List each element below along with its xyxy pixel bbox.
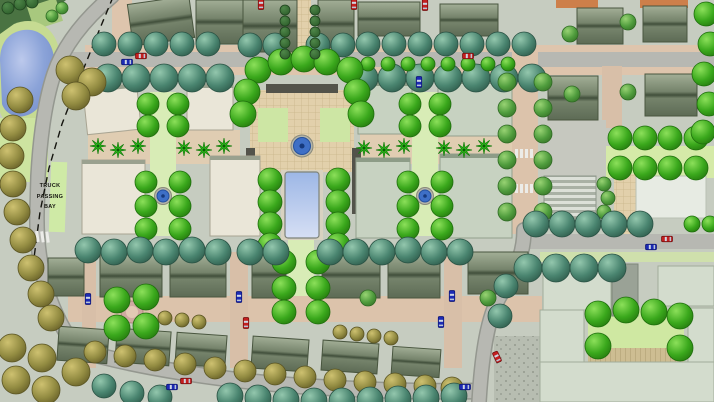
palm-plant-center [137, 145, 140, 148]
bright-green-tree [230, 101, 256, 127]
bright-green-tree [135, 218, 157, 240]
palm-plant-center [383, 149, 386, 152]
bright-green-tree [692, 62, 714, 86]
palm-plant-center [183, 147, 186, 150]
olive-tree [7, 87, 33, 113]
bright-green-tree [326, 190, 350, 214]
apartment-building-edge [210, 156, 260, 160]
green-tree [480, 290, 496, 306]
teal-tree [153, 239, 179, 265]
bright-green-tree [306, 276, 330, 300]
spine-fountain-right-center [423, 194, 427, 198]
truck-passing-bay-verge [49, 162, 67, 233]
green-tree [46, 10, 58, 22]
olive-tree [114, 345, 136, 367]
bright-green-tree [326, 168, 350, 192]
apartment-building [210, 156, 260, 236]
teal-tree [144, 32, 168, 56]
teal-tree [447, 239, 473, 265]
bright-green-tree [135, 171, 157, 193]
green-tree [597, 177, 611, 191]
teal-tree [395, 237, 421, 263]
palm-plant-center [483, 145, 486, 148]
green-tree [562, 26, 578, 42]
bright-green-tree [658, 126, 682, 150]
bright-green-tree [397, 171, 419, 193]
olive-tree [158, 311, 172, 325]
dark-shrub [280, 5, 290, 15]
car-blue [438, 317, 444, 328]
dark-shrub [280, 49, 290, 59]
car-blue [449, 291, 455, 302]
car-blue [416, 77, 422, 88]
bright-green-tree [613, 297, 639, 323]
bright-green-tree [348, 101, 374, 127]
car-red [422, 0, 428, 11]
bright-green-tree [399, 115, 421, 137]
apartment-building-edge [356, 158, 410, 162]
bright-green-tree [691, 120, 714, 144]
green-tree [564, 86, 580, 102]
bright-green-tree [137, 93, 159, 115]
bright-green-tree [258, 212, 282, 236]
olive-tree [384, 331, 398, 345]
teal-tree [317, 239, 343, 265]
bright-green-tree [234, 79, 260, 105]
olive-tree [333, 325, 347, 339]
teal-tree [523, 211, 549, 237]
green-tree [534, 125, 552, 143]
olive-tree [0, 334, 26, 362]
bright-green-tree [258, 168, 282, 192]
bright-green-tree [104, 315, 130, 341]
teal-tree [570, 254, 598, 282]
olive-tree [175, 313, 189, 327]
bright-green-tree [272, 300, 296, 324]
bright-green-tree [585, 301, 611, 327]
flat-roof-building [658, 266, 714, 306]
plaza-lawn-right [320, 108, 350, 142]
teal-tree [92, 32, 116, 56]
crosswalk-east-1 [525, 149, 528, 158]
green-tree [534, 177, 552, 195]
dark-shrub [280, 16, 290, 26]
teal-tree [343, 239, 369, 265]
olive-tree [28, 344, 56, 372]
olive-tree [32, 376, 60, 402]
palm-plant-center [363, 147, 366, 150]
teal-tree [237, 239, 263, 265]
palm-plant-center [117, 149, 120, 152]
dark-shrub [310, 49, 320, 59]
olive-tree [84, 341, 106, 363]
car-red [136, 53, 147, 59]
bright-green-tree [133, 313, 159, 339]
teal-tree [488, 304, 512, 328]
crosswalk-east-1 [530, 149, 533, 158]
bright-green-tree [429, 93, 451, 115]
bright-green-tree [481, 57, 495, 71]
teal-tree [101, 239, 127, 265]
teal-tree [122, 64, 150, 92]
teal-tree [356, 32, 380, 56]
bright-green-tree [344, 79, 370, 105]
building [636, 176, 706, 218]
plaza-fountain-center [299, 143, 304, 148]
olive-tree [367, 329, 381, 343]
spine-fountain-left-center [161, 194, 165, 198]
bright-green-tree [633, 156, 657, 180]
olive-tree [350, 327, 364, 341]
teal-tree [601, 211, 627, 237]
reflecting-pool [285, 172, 319, 238]
palm-plant-center [97, 145, 100, 148]
dark-shrub [310, 27, 320, 37]
mews-street-3 [444, 252, 462, 368]
car-blue [167, 384, 178, 390]
bright-green-tree [608, 126, 632, 150]
teal-tree [206, 64, 234, 92]
green-tree [534, 73, 552, 91]
masterplan-viewport: TRUCK PASSING BAY [0, 0, 714, 402]
townhouse-roof [577, 8, 623, 44]
townhouse-roof [321, 340, 379, 374]
teal-tree [512, 32, 536, 56]
site-plan-rendering [0, 0, 714, 402]
green-tree [498, 73, 516, 91]
teal-tree [179, 237, 205, 263]
olive-tree [0, 115, 26, 141]
bright-green-tree [104, 287, 130, 313]
crosswalk-east-2 [525, 184, 528, 193]
olive-tree [192, 315, 206, 329]
palm-plant-center [203, 149, 206, 152]
dark-shrub [310, 5, 320, 15]
car-blue [236, 292, 242, 303]
teal-tree [263, 239, 289, 265]
townhouse-roof [645, 74, 697, 116]
bright-green-tree [658, 156, 682, 180]
mews-street-2 [230, 252, 248, 368]
teal-tree [170, 32, 194, 56]
olive-tree [4, 199, 30, 225]
teal-tree [75, 237, 101, 263]
teal-tree [494, 274, 518, 298]
olive-tree [38, 305, 64, 331]
teal-tree [238, 33, 262, 57]
bright-green-tree [441, 57, 455, 71]
gravel-garden [494, 336, 540, 402]
crosswalk-east-1 [520, 149, 523, 158]
teal-tree [627, 211, 653, 237]
olive-tree [174, 353, 196, 375]
olive-tree [0, 143, 24, 169]
palm-plant-center [443, 147, 446, 150]
pergola [266, 84, 338, 93]
green-tree [620, 84, 636, 100]
teal-tree [196, 32, 220, 56]
green-tree [534, 151, 552, 169]
olive-tree [144, 349, 166, 371]
bright-green-tree [684, 216, 700, 232]
bright-green-tree [667, 335, 693, 361]
teal-tree [382, 32, 406, 56]
bright-green-tree [272, 276, 296, 300]
olive-tree [18, 255, 44, 281]
bright-green-tree [429, 115, 451, 137]
bright-green-tree [702, 216, 714, 232]
green-tree [498, 99, 516, 117]
dark-shrub [26, 0, 38, 8]
green-tree [498, 177, 516, 195]
bright-green-tree [137, 115, 159, 137]
townhouse-roof [391, 346, 441, 377]
teal-tree [421, 239, 447, 265]
teal-tree [575, 211, 601, 237]
green-tree [498, 203, 516, 221]
car-red [662, 236, 673, 242]
bright-green-tree [167, 115, 189, 137]
bright-green-tree [258, 190, 282, 214]
flat-roof-building [540, 362, 714, 402]
car-blue [646, 244, 657, 250]
car-red [351, 0, 357, 10]
townhouse-roof [440, 4, 498, 36]
bright-green-tree [326, 212, 350, 236]
dark-shrub [310, 16, 320, 26]
bright-green-tree [431, 218, 453, 240]
bright-green-tree [431, 195, 453, 217]
green-tree [601, 191, 615, 205]
olive-tree [234, 360, 256, 382]
teal-tree [549, 211, 575, 237]
teal-tree [486, 32, 510, 56]
car-red [463, 53, 474, 59]
apartment-building [82, 160, 145, 234]
olive-tree [10, 227, 36, 253]
teal-tree [408, 32, 432, 56]
bright-green-tree [167, 93, 189, 115]
olive-tree [28, 281, 54, 307]
bright-green-tree [667, 303, 693, 329]
olive-tree [62, 358, 90, 386]
teal-tree [178, 64, 206, 92]
green-tree [56, 2, 68, 14]
bright-green-tree [397, 195, 419, 217]
palm-plant-center [463, 149, 466, 152]
bright-green-tree [169, 171, 191, 193]
green-tree [360, 290, 376, 306]
green-tree [498, 151, 516, 169]
bright-green-tree [501, 57, 515, 71]
car-blue [85, 294, 91, 305]
dark-shrub [310, 38, 320, 48]
olive-tree [204, 357, 226, 379]
bright-green-tree [399, 93, 421, 115]
crosswalk-east-2 [520, 184, 523, 193]
teal-tree [460, 32, 484, 56]
crosswalk-east-2 [530, 184, 533, 193]
teal-tree [118, 32, 142, 56]
terracotta-entry-1 [556, 0, 598, 8]
bright-green-tree [135, 195, 157, 217]
car-red [258, 0, 264, 10]
bright-green-tree [684, 156, 708, 180]
bright-green-tree [306, 300, 330, 324]
bright-green-tree [694, 2, 714, 26]
bright-green-tree [401, 57, 415, 71]
teal-tree [92, 374, 116, 398]
olive-tree [264, 363, 286, 385]
car-blue [460, 384, 471, 390]
green-tree [620, 14, 636, 30]
teal-tree [369, 239, 395, 265]
plaza-lawn-left [258, 108, 288, 142]
palm-plant-center [223, 145, 226, 148]
teal-tree [514, 254, 542, 282]
teal-tree [205, 239, 231, 265]
bright-green-tree [133, 284, 159, 310]
olive-tree [0, 171, 26, 197]
teal-tree [598, 254, 626, 282]
apartment-building-edge [82, 160, 145, 164]
teal-tree [150, 64, 178, 92]
bright-green-tree [641, 299, 667, 325]
townhouse-roof [358, 2, 420, 36]
bright-green-tree [585, 333, 611, 359]
bright-green-tree [169, 195, 191, 217]
dark-shrub [2, 2, 14, 14]
dark-shrub [14, 0, 26, 10]
teal-tree [542, 254, 570, 282]
car-red [181, 378, 192, 384]
green-tree [534, 99, 552, 117]
olive-tree [62, 82, 90, 110]
teal-tree [120, 381, 144, 402]
townhouse-roof [643, 6, 687, 42]
olive-tree [294, 366, 316, 388]
flat-roof-building [540, 310, 584, 362]
teal-tree [127, 237, 153, 263]
car-red [243, 318, 249, 329]
car-blue [122, 59, 133, 65]
bright-green-tree [169, 218, 191, 240]
bright-green-tree [421, 57, 435, 71]
bright-green-tree [431, 171, 453, 193]
dark-shrub [280, 27, 290, 37]
bright-green-tree [608, 156, 632, 180]
teal-tree [434, 32, 458, 56]
bright-green-tree [633, 126, 657, 150]
green-tree [498, 125, 516, 143]
bright-green-tree [381, 57, 395, 71]
dark-shrub [280, 38, 290, 48]
palm-plant-center [403, 145, 406, 148]
olive-tree [2, 366, 30, 394]
